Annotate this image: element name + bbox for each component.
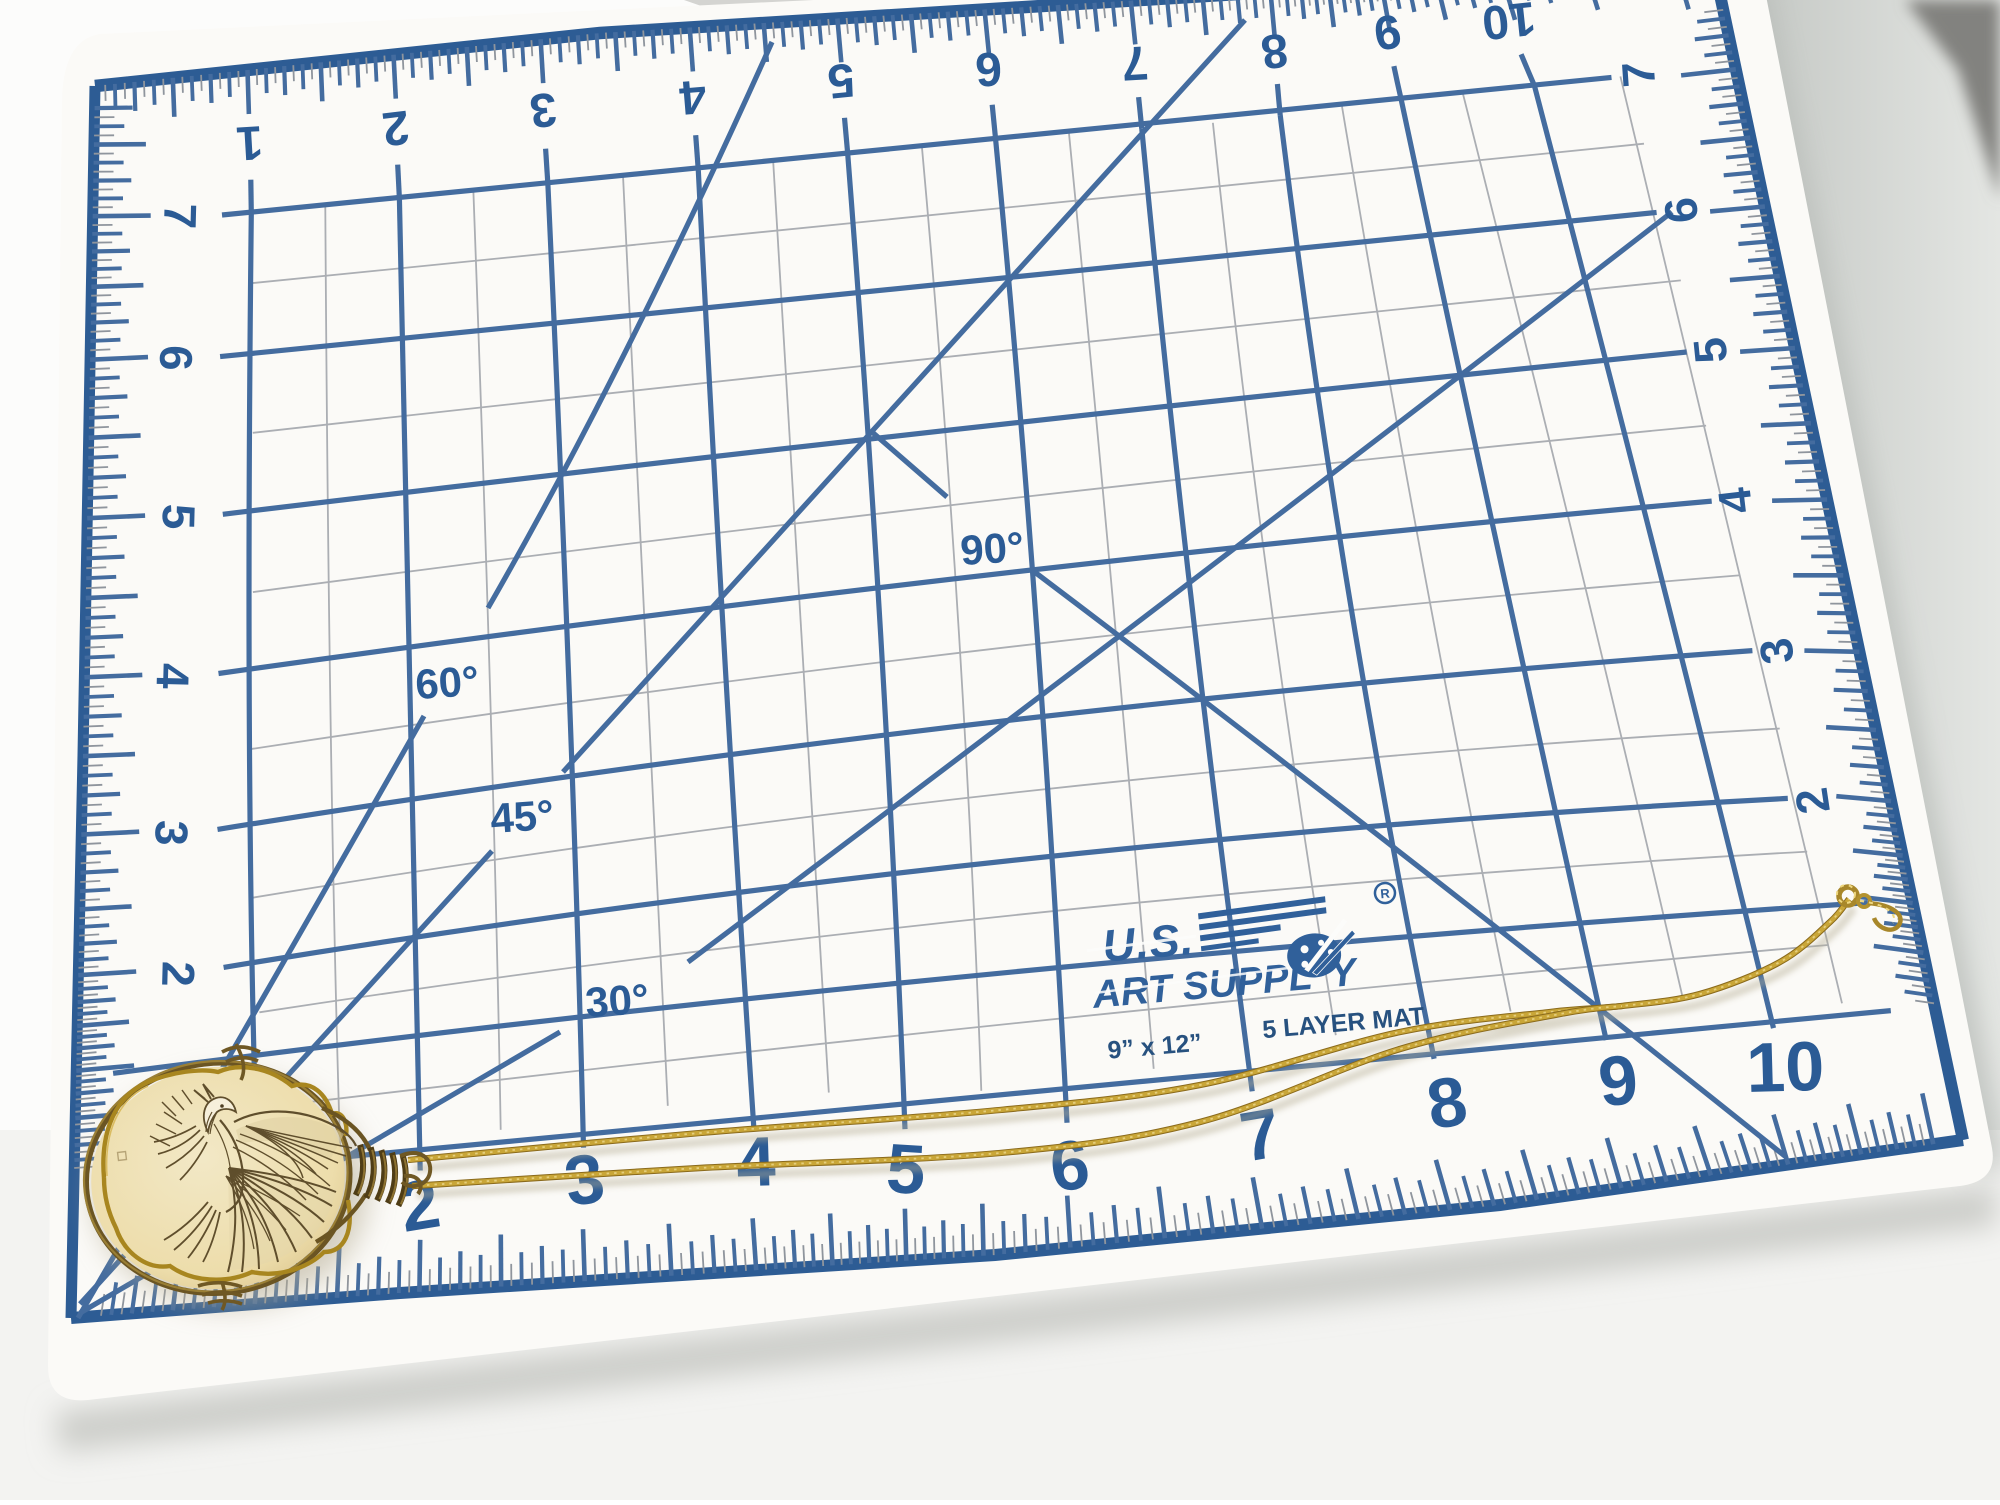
- svg-text:5: 5: [825, 52, 857, 107]
- svg-text:2: 2: [152, 961, 205, 988]
- svg-text:6: 6: [974, 41, 1004, 95]
- svg-text:9: 9: [1595, 1040, 1642, 1122]
- svg-text:90°: 90°: [959, 523, 1026, 574]
- svg-text:60°: 60°: [414, 657, 481, 708]
- svg-text:6: 6: [150, 344, 203, 371]
- svg-text:10: 10: [1479, 0, 1538, 49]
- svg-text:6: 6: [1654, 195, 1708, 225]
- svg-text:4: 4: [677, 69, 708, 124]
- svg-text:3: 3: [145, 820, 198, 847]
- svg-text:7: 7: [1120, 35, 1150, 89]
- svg-text:5: 5: [152, 503, 205, 530]
- svg-text:10: 10: [1745, 1027, 1825, 1107]
- svg-text:5: 5: [1683, 335, 1737, 366]
- svg-text:45°: 45°: [489, 791, 556, 842]
- svg-text:7: 7: [154, 203, 207, 230]
- svg-text:1: 1: [235, 115, 265, 169]
- svg-text:4: 4: [147, 663, 200, 690]
- svg-text:30°: 30°: [584, 975, 651, 1026]
- svg-text:7: 7: [1612, 60, 1666, 89]
